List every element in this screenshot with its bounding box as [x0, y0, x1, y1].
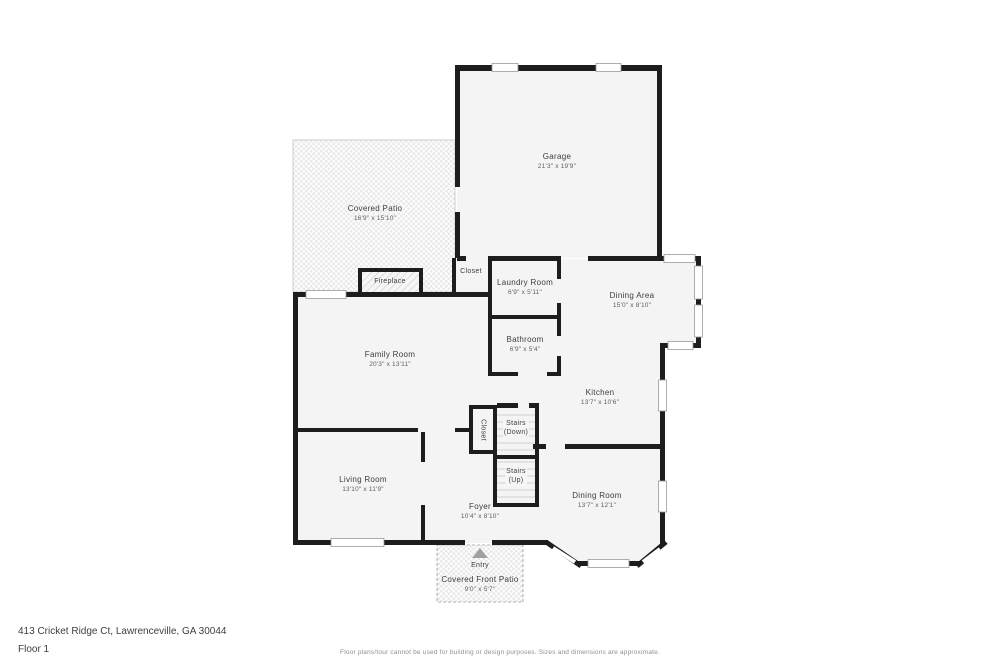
property-address: 413 Cricket Ridge Ct, Lawrenceville, GA … — [18, 626, 226, 637]
floorplan-page: Garage 21'3" x 19'9" Covered Patio 16'9"… — [0, 0, 1000, 667]
disclaimer-text: Floor plans/tour cannot be used for buil… — [0, 649, 1000, 656]
floorplan-drawing — [0, 0, 1000, 667]
fireplace-box — [360, 270, 421, 294]
room-name: Closet — [480, 419, 487, 441]
room-label-closet-stairs: Closet — [480, 419, 487, 441]
